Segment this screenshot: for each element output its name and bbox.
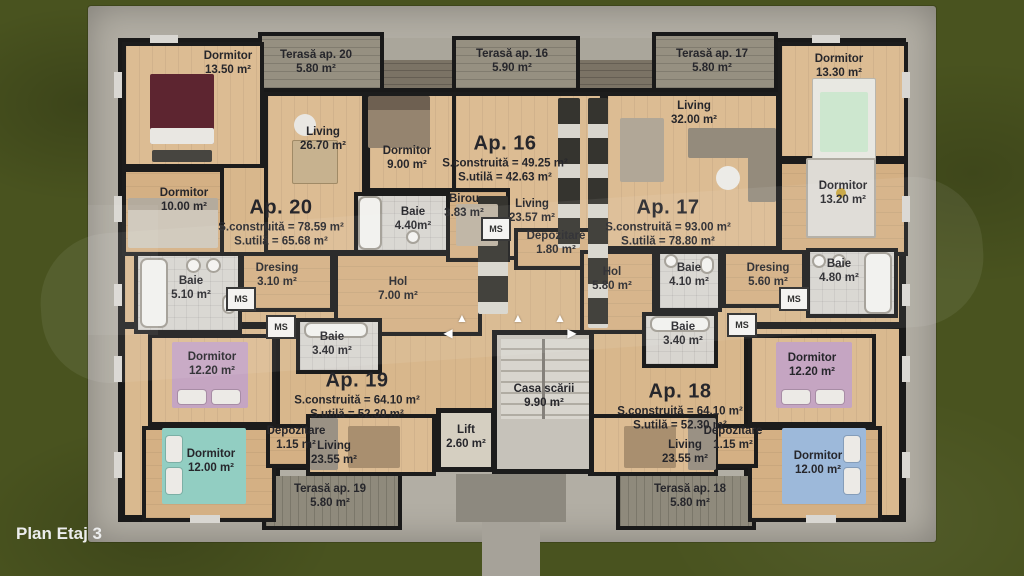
label-terrace-ap18: Terasă ap. 185.80 m² xyxy=(654,482,726,510)
bathtub-ap16 xyxy=(358,196,382,250)
ms-tag: MS xyxy=(779,287,809,311)
window xyxy=(902,72,910,98)
label-ap18-baie: Baie3.40 m² xyxy=(663,320,703,348)
label-ap19-dormitor-2: Dormitor12.00 m² xyxy=(187,447,236,475)
bed-green xyxy=(820,92,868,152)
arrow-up-icon: ▲ xyxy=(512,311,524,325)
label-ap20-hol: Hol7.00 m² xyxy=(378,275,418,303)
tv-stand xyxy=(152,150,212,162)
window xyxy=(150,35,178,43)
label-ap19-baie: Baie3.40 m² xyxy=(312,330,352,358)
label-terrace-ap16: Terasă ap. 165.90 m² xyxy=(476,47,548,75)
label-ap19-living: Living23.55 m² xyxy=(311,439,357,467)
label-ap17-dormitor-1: Dormitor13.30 m² xyxy=(815,52,864,80)
arrow-left-icon: ◀ xyxy=(443,326,452,340)
rug-ap17 xyxy=(716,166,740,190)
label-ap18-living: Living23.55 m² xyxy=(662,438,708,466)
window xyxy=(806,515,836,523)
plan-title: Plan Etaj 3 xyxy=(16,524,102,544)
sink xyxy=(206,258,221,273)
label-ap20-dormitor-1: Dormitor13.50 m² xyxy=(204,49,253,77)
label-ap20-baie: Baie5.10 m² xyxy=(171,274,211,302)
window xyxy=(190,515,220,523)
label-ap17-living: Living32.00 m² xyxy=(671,99,717,127)
window xyxy=(114,72,122,98)
arrow-up-icon: ▲ xyxy=(456,311,468,325)
label-ap16-living: Living23.57 m² xyxy=(509,197,555,225)
label-terrace-ap20: Terasă ap. 205.80 m² xyxy=(280,48,352,76)
window xyxy=(812,35,840,43)
label-ap20-dresing: Dresing3.10 m² xyxy=(256,261,299,289)
sofa-ap17-v xyxy=(748,128,776,202)
label-ap17-baie-1: Baie4.10 m² xyxy=(669,261,709,289)
window xyxy=(902,284,910,306)
label-ap20-living: Living26.70 m² xyxy=(300,125,346,153)
title-ap20: Ap. 20 S.construită = 78.59 m² S.utilă =… xyxy=(218,195,344,248)
ms-tag: MS xyxy=(727,313,757,337)
title-ap17: Ap. 17 S.construită = 93.00 m² S.utilă =… xyxy=(605,195,731,248)
ms-tag: MS xyxy=(226,287,256,311)
label-ap19-dormitor-1: Dormitor12.20 m² xyxy=(188,350,237,378)
window xyxy=(902,452,910,478)
label-ap17-dormitor-2: Dormitor13.20 m² xyxy=(819,179,868,207)
label-casa-scarii: Casa scării9.90 m² xyxy=(514,382,575,410)
title-ap19: Ap. 19 S.construită = 64.10 m² S.utilă =… xyxy=(294,368,420,421)
arrow-up-icon: ▲ xyxy=(554,311,566,325)
title-ap16: Ap. 16 S.construită = 49.25 m² S.utilă =… xyxy=(442,131,568,184)
label-ap18-dormitor-1: Dormitor12.20 m² xyxy=(788,351,837,379)
label-ap17-baie-2: Baie4.80 m² xyxy=(819,257,859,285)
window xyxy=(902,356,910,382)
watermark-patch xyxy=(88,205,158,335)
floor-plan: MS MS MS MS MS ▲ ▲ ▲ ◀ ▶ Dormitor13.50 m… xyxy=(0,0,1024,576)
ms-tag: MS xyxy=(266,315,296,339)
ms-tag: MS xyxy=(481,217,511,241)
title-ap18: Ap. 18 S.construită = 64.10 m² S.utilă =… xyxy=(617,379,743,432)
label-ap17-dresing: Dresing5.60 m² xyxy=(747,261,790,289)
bathtub-ap17 xyxy=(864,252,892,314)
bed-maroon-sheet xyxy=(150,128,214,144)
label-ap16-dormitor: Dormitor9.00 m² xyxy=(383,144,432,172)
label-lift: Lift2.60 m² xyxy=(446,423,486,451)
sink xyxy=(186,258,201,273)
bed-ap16 xyxy=(368,96,430,148)
label-ap18-dormitor-2: Dormitor12.00 m² xyxy=(794,449,843,477)
label-ap16-birou: Birou3.83 m² xyxy=(444,192,484,220)
dining-table-ap17 xyxy=(620,118,664,182)
window xyxy=(114,452,122,478)
window xyxy=(114,356,122,382)
label-terrace-ap17: Terasă ap. 175.80 m² xyxy=(676,47,748,75)
label-terrace-ap19: Terasă ap. 195.80 m² xyxy=(294,482,366,510)
label-ap17-hol: Hol5.80 m² xyxy=(592,265,632,293)
label-ap16-baie: Baie4.40m² xyxy=(395,205,431,233)
window xyxy=(902,196,910,222)
entrance-pad xyxy=(456,474,566,522)
label-ap16-depozitare: Depozitare1.80 m² xyxy=(527,229,586,257)
sidewalk-path xyxy=(482,520,540,576)
arrow-right-icon: ▶ xyxy=(567,326,576,340)
label-ap20-dormitor-2: Dormitor10.00 m² xyxy=(160,186,209,214)
